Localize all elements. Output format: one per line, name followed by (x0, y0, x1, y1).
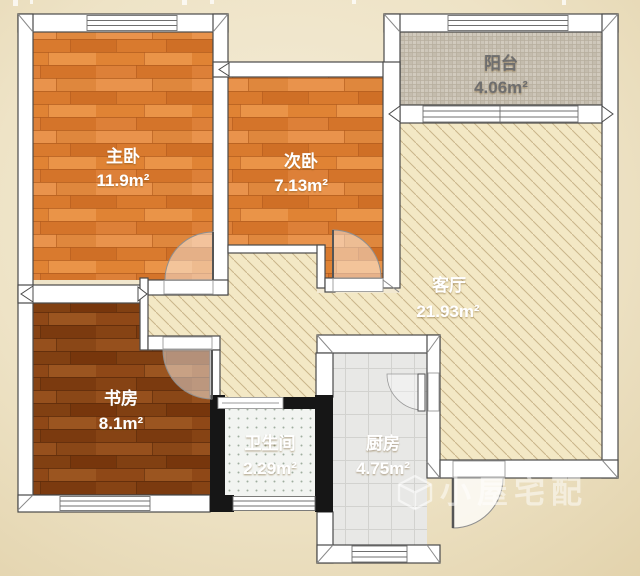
kitchen-area: 4.75m² (356, 459, 410, 478)
study-area: 8.1m² (99, 414, 144, 433)
study-door-threshold (163, 337, 212, 349)
kitchen-door-threshold (428, 373, 439, 411)
master-bedroom-name: 主卧 (106, 146, 140, 166)
bathroom-window (233, 497, 315, 511)
master-bedroom-area: 11.9m² (97, 171, 150, 190)
bathroom-area: 2.29m² (243, 459, 297, 478)
floorplan-image: 主卧 11.9m² 次卧 7.13m² 阳台 4.06m² 客厅 21.93m²… (0, 0, 640, 576)
balcony-name: 阳台 (484, 53, 518, 73)
kitchen-window (352, 546, 407, 562)
second-bedroom-area: 7.13m² (274, 176, 328, 195)
kitchen-name: 厨房 (366, 433, 400, 453)
living-room-name: 客厅 (431, 275, 466, 295)
living-room-area: 21.93m² (416, 302, 480, 321)
corridor-bathroom-floor (220, 336, 317, 397)
master-bedroom-window (87, 16, 177, 31)
hallway-floor (148, 293, 400, 336)
balcony-window (448, 16, 568, 31)
second-bedroom-door-threshold (333, 279, 383, 292)
study-name: 书房 (104, 388, 138, 408)
corridor-upper-floor (228, 253, 317, 293)
study-window (60, 497, 150, 511)
balcony-sliding-door (423, 106, 578, 122)
second-bedroom-name: 次卧 (284, 151, 318, 171)
balcony-area: 4.06m² (474, 78, 528, 97)
bathroom-name: 卫生间 (245, 433, 296, 453)
master-door-threshold (164, 281, 213, 295)
kitchen-door-leaf (418, 374, 425, 411)
watermark-text: 小屋宅配 (440, 475, 588, 510)
